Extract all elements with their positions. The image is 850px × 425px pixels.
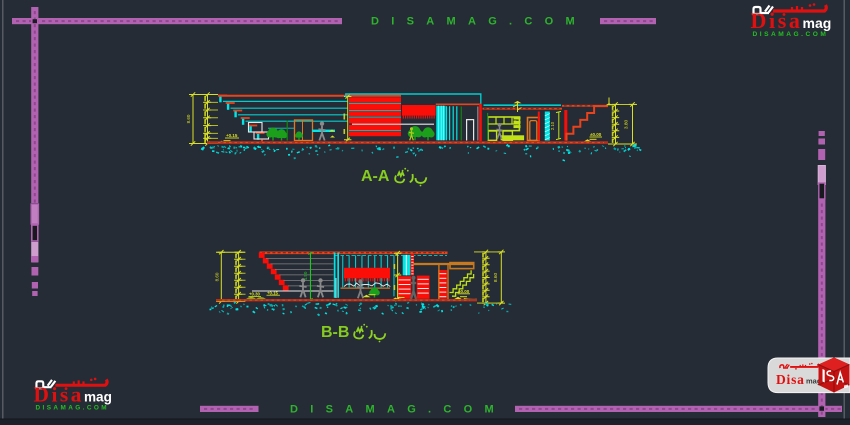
svg-text:3.80: 3.80 — [624, 120, 630, 130]
svg-text:Disa: Disa — [34, 383, 84, 407]
svg-text:DISAMAG.COM: DISAMAG.COM — [290, 404, 506, 416]
svg-text:±0.00: ±0.00 — [458, 289, 470, 294]
svg-text:DISAMAG.COM: DISAMAG.COM — [35, 405, 109, 412]
svg-text:A-A: A-A — [361, 168, 390, 185]
svg-text:8.60: 8.60 — [214, 272, 219, 281]
svg-text:Disa: Disa — [751, 8, 803, 33]
svg-text:Disa: Disa — [776, 372, 805, 387]
svg-text:+0.15: +0.15 — [267, 290, 278, 295]
svg-text:±0.00: ±0.00 — [590, 132, 602, 137]
svg-text:mag: mag — [84, 390, 112, 405]
svg-text:+0.15: +0.15 — [226, 133, 238, 138]
svg-text:mag: mag — [803, 15, 832, 31]
svg-text:8.60: 8.60 — [186, 114, 191, 123]
svg-text:DISAMAG.COM: DISAMAG.COM — [371, 16, 587, 28]
svg-text:DISAMAG.COM: DISAMAG.COM — [753, 31, 829, 38]
svg-text:+0.30: +0.30 — [249, 292, 260, 297]
svg-text:2.10: 2.10 — [550, 121, 555, 130]
svg-text:1.10: 1.10 — [513, 119, 518, 128]
svg-text:B-B: B-B — [321, 324, 349, 341]
svg-text:8.60: 8.60 — [493, 273, 499, 283]
